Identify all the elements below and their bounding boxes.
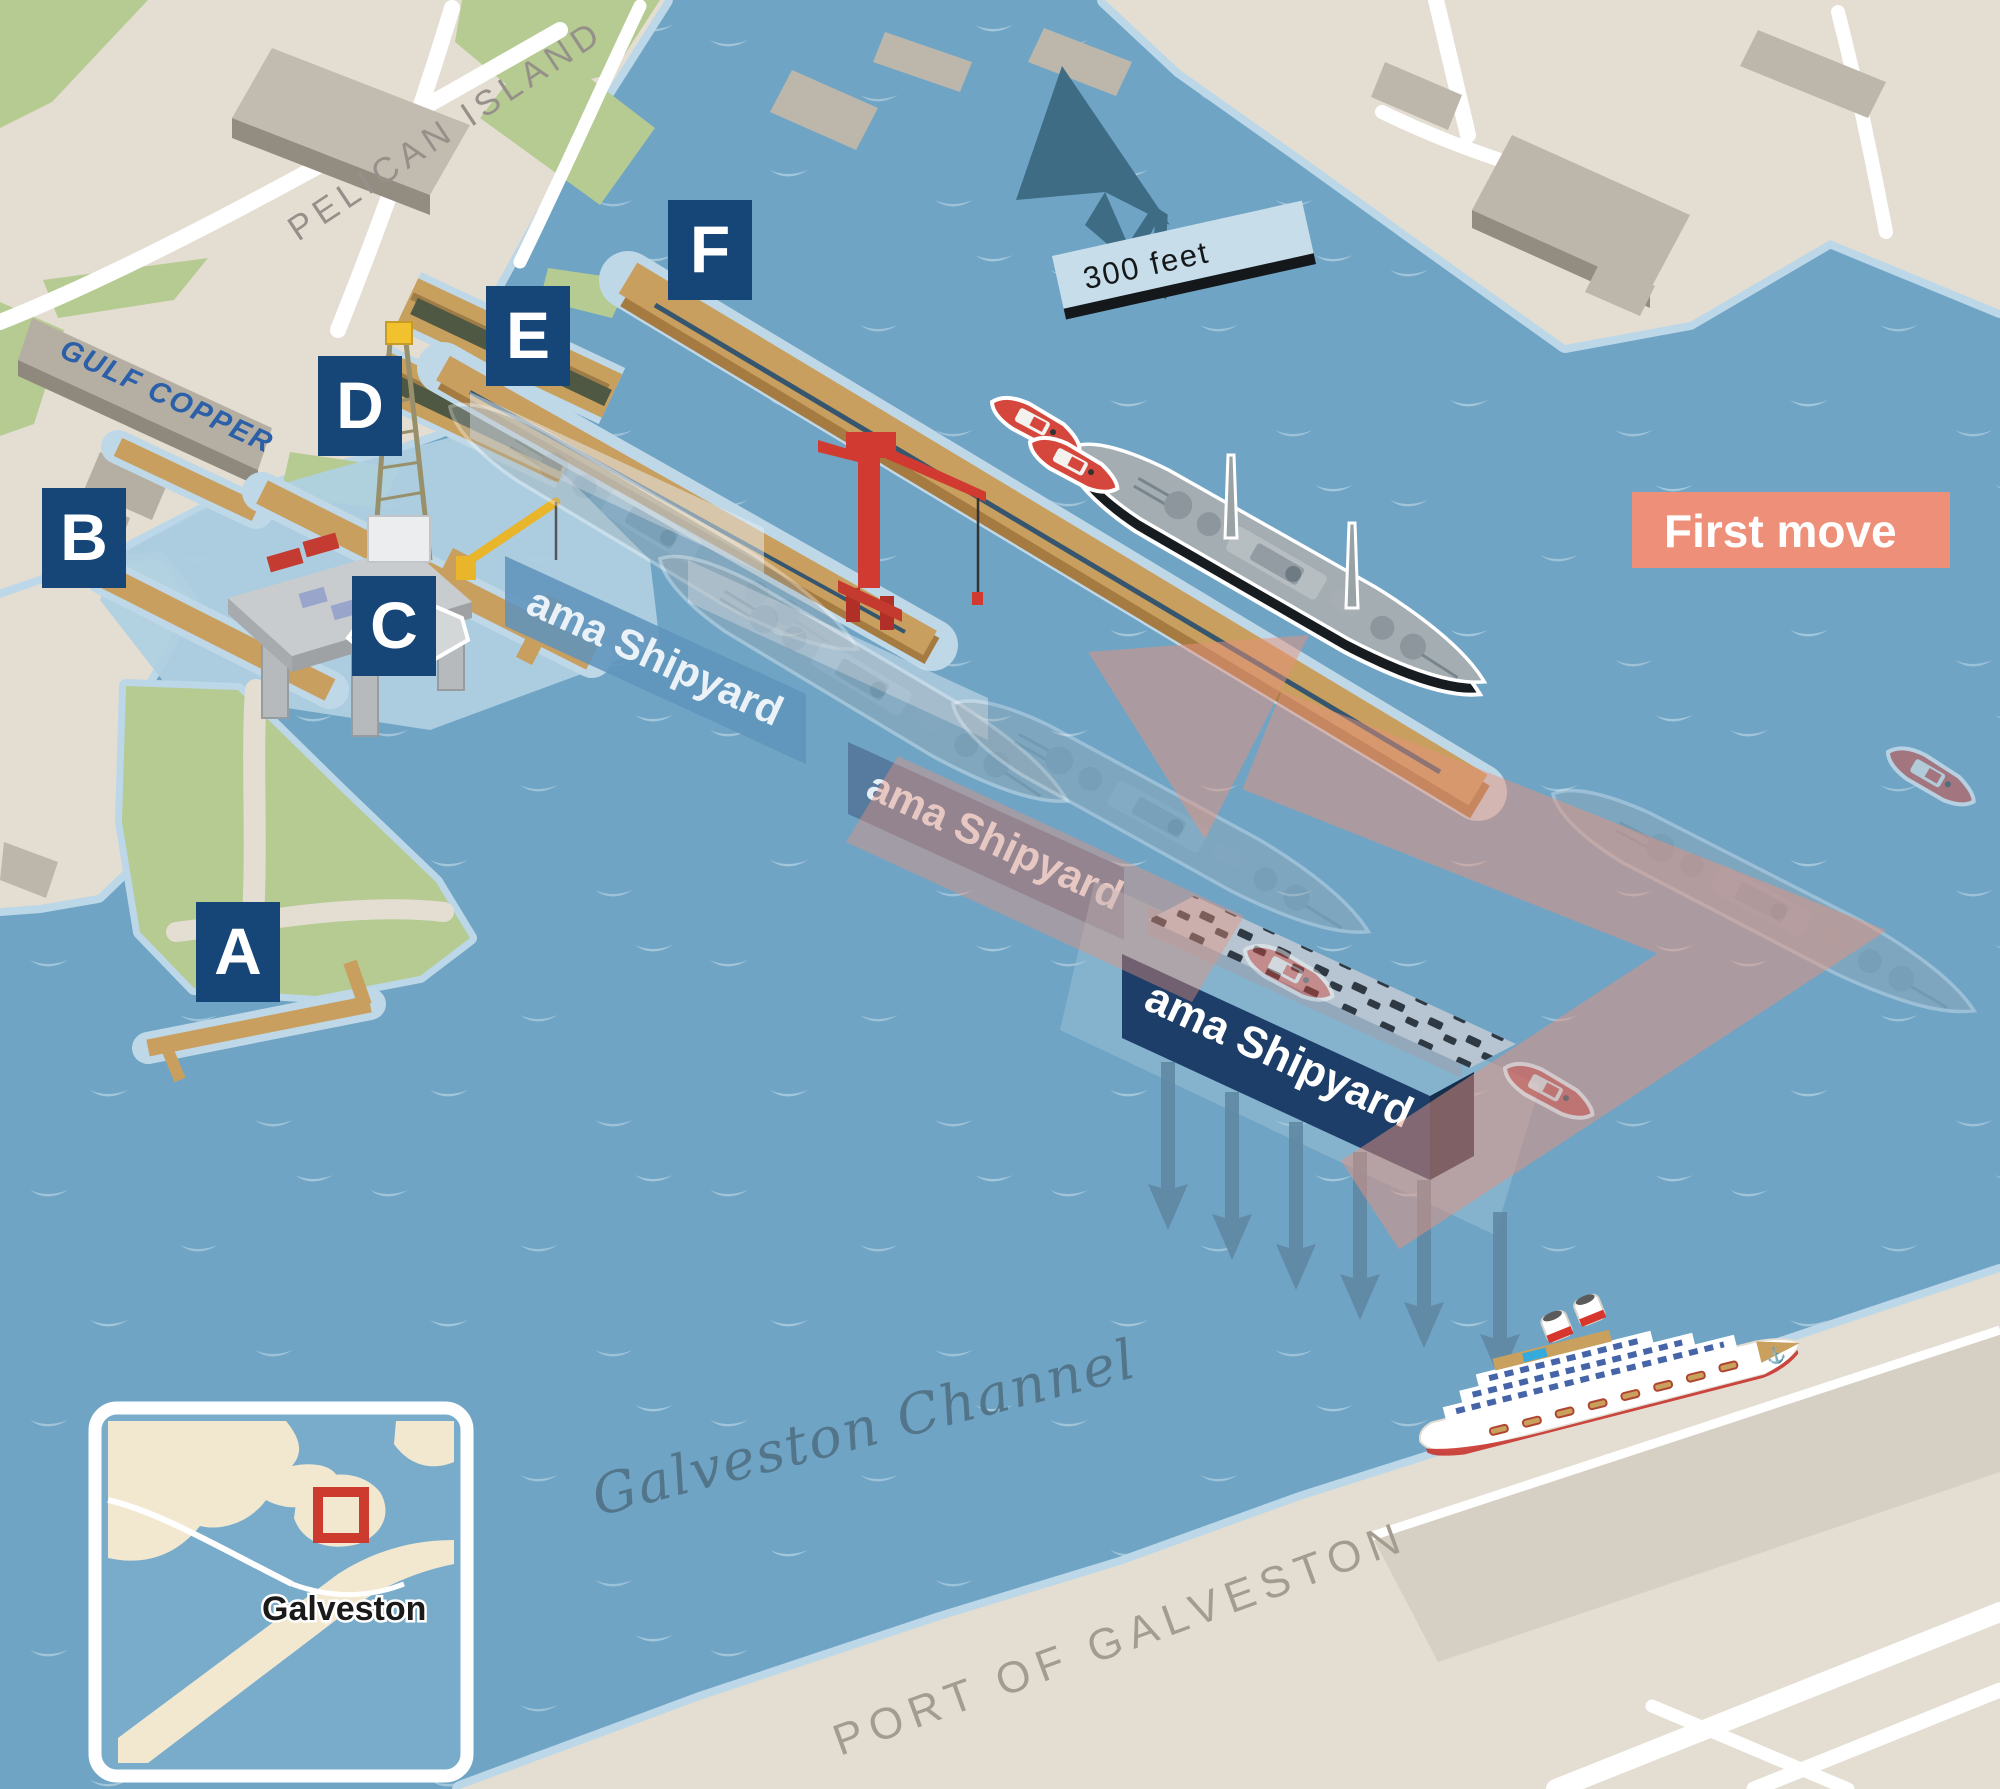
fore-mast <box>1225 455 1237 538</box>
berth-label-c: C <box>352 576 436 676</box>
berth-label-b: B <box>42 488 126 588</box>
infographic-map: GULF COPPER <box>0 0 2000 1789</box>
berth-letter-a: A <box>214 914 262 988</box>
berth-label-a: A <box>196 902 280 1002</box>
berth-letter-b: B <box>60 500 108 574</box>
main-mast <box>1346 523 1358 608</box>
inset-city-label: Galveston <box>262 1590 426 1628</box>
first-move-label: First move <box>1664 505 1897 557</box>
berth-letter-d: D <box>336 368 384 442</box>
inset-map: Galveston <box>95 1408 467 1776</box>
berth-label-d: D <box>318 356 402 456</box>
first-move-badge: First move <box>1632 492 1950 568</box>
berth-label-e: E <box>486 286 570 386</box>
berth-letter-e: E <box>506 298 550 372</box>
berth-letter-c: C <box>370 588 418 662</box>
berth-label-f: F <box>668 200 752 300</box>
berth-letter-f: F <box>690 212 730 286</box>
map-canvas: GULF COPPER <box>0 0 2000 1789</box>
